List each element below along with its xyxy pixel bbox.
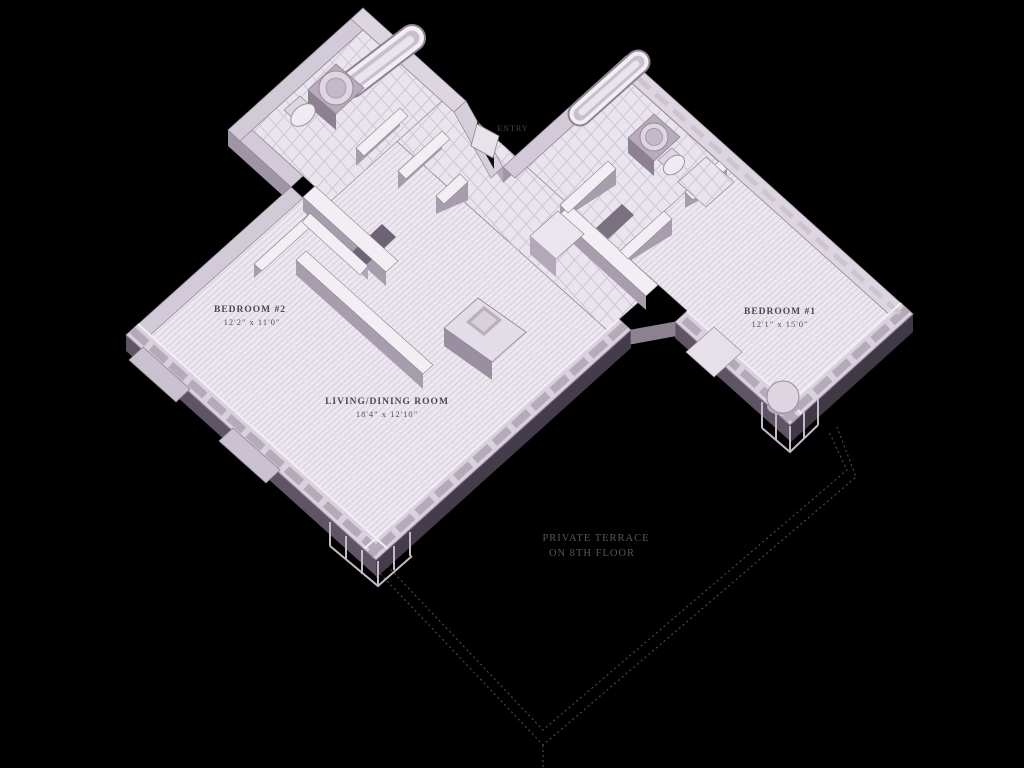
bedroom1-dimensions: 12'1" x 15'0" <box>751 319 808 329</box>
bedroom2-dimensions: 12'2" x 11'0" <box>224 317 281 327</box>
floor-plan-illustration: BEDROOM #2 12'2" x 11'0" LIVING/DINING R… <box>0 0 1024 768</box>
floor-plan-page: BEDROOM #2 12'2" x 11'0" LIVING/DINING R… <box>0 0 1024 768</box>
round-table <box>767 381 799 413</box>
living-dimensions: 18'4" x 12'10" <box>356 409 418 419</box>
terrace-label-line2: ON 8TH FLOOR <box>549 548 635 559</box>
bedroom1-label: BEDROOM #1 <box>744 307 816 317</box>
bedroom2-label: BEDROOM #2 <box>214 305 286 315</box>
terrace-label-line1: PRIVATE TERRACE <box>542 533 649 544</box>
entry-label: ENTRY <box>497 124 528 133</box>
living-label: LIVING/DINING ROOM <box>325 397 449 407</box>
